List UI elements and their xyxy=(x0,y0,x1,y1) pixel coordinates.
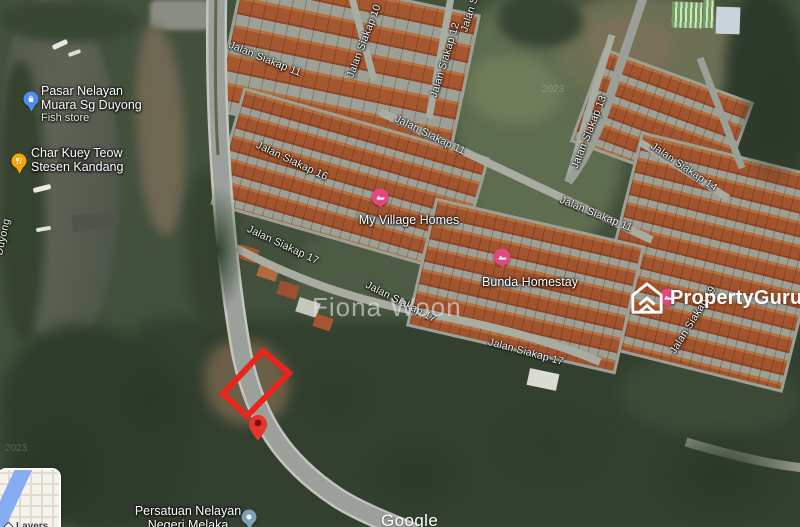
imagery-watermark: 2023 xyxy=(5,443,27,454)
bed-icon xyxy=(497,252,507,262)
layers-icon xyxy=(4,522,14,527)
bed-icon xyxy=(375,192,385,202)
poi-label-persatuan-nelayan[interactable]: Persatuan Nelayan Negeri Melaka xyxy=(135,505,241,527)
listing-marker xyxy=(249,415,267,441)
agent-watermark: Fiona Woon xyxy=(312,292,462,323)
layers-map-preview xyxy=(0,470,59,527)
propertyguru-wordmark: PropertyGuru xyxy=(670,287,800,310)
google-logo[interactable]: Google xyxy=(381,511,438,527)
poi-name-line: Stesen Kandang xyxy=(31,161,123,175)
listing-boundary xyxy=(223,351,289,416)
poi-name-line: Char Kuey Teow xyxy=(31,147,123,161)
poi-label-bunda-homestay[interactable]: Bunda Homestay xyxy=(482,276,578,290)
community-pin[interactable] xyxy=(242,510,257,525)
restaurant-pin[interactable] xyxy=(12,154,27,169)
poi-name-line: Negeri Melaka xyxy=(135,519,241,527)
poi-name-line: Muara Sg Duyong xyxy=(41,99,142,113)
shopping-bag-icon xyxy=(27,95,36,104)
poi-label-pasar-nelayan[interactable]: Pasar Nelayan Muara Sg Duyong Fish store xyxy=(41,85,142,126)
layers-label: Layers xyxy=(5,521,48,527)
pin-dot xyxy=(247,515,252,520)
map-canvas[interactable]: Jalan Siakap 11 Jalan Siakap 10 Jalan Si… xyxy=(0,0,800,527)
shopping-pin[interactable] xyxy=(24,92,39,107)
poi-name-line: Persatuan Nelayan xyxy=(135,505,241,519)
layers-text: Layers xyxy=(16,521,48,527)
poi-subtitle: Fish store xyxy=(41,112,142,126)
propertyguru-house-icon xyxy=(630,281,664,315)
poi-name-line: Pasar Nelayan xyxy=(41,85,142,99)
poi-label-char-kuey-teow[interactable]: Char Kuey Teow Stesen Kandang xyxy=(31,147,123,174)
poi-label-my-village-homes[interactable]: My Village Homes xyxy=(359,214,460,228)
fork-knife-icon xyxy=(15,157,24,166)
imagery-watermark: 2023 xyxy=(542,84,564,95)
listing-overlay xyxy=(0,0,800,527)
lodging-pin[interactable] xyxy=(494,249,511,266)
propertyguru-watermark: PropertyGuru xyxy=(630,281,800,315)
layers-control[interactable]: Layers xyxy=(0,468,61,527)
lodging-pin[interactable] xyxy=(372,189,389,206)
